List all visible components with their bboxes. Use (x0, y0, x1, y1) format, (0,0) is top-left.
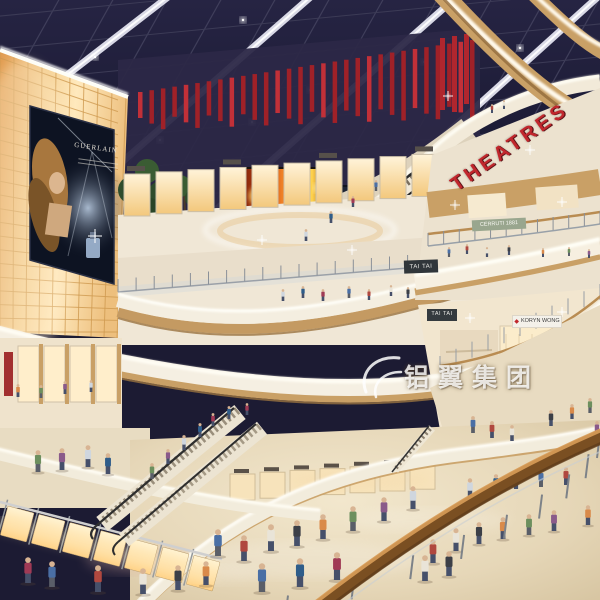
person-figure (351, 196, 354, 207)
person-figure (211, 413, 215, 426)
person-figure (39, 385, 43, 398)
person-figure (570, 404, 574, 419)
person-figure (227, 406, 231, 419)
person-figure (491, 104, 494, 113)
person-figure (568, 247, 571, 256)
person-figure (448, 247, 451, 257)
mall-scene-graphic (0, 0, 600, 600)
person-figure (389, 285, 392, 296)
person-figure (347, 286, 350, 298)
person-figure (150, 463, 154, 479)
mall-atrium-photo: THEATRES GUERLAIN TAI TAI TAI TAI CERRUT… (0, 0, 600, 600)
person-figure (198, 423, 202, 437)
person-figure (374, 180, 377, 191)
person-figure (20, 557, 36, 586)
perfume-billboard (22, 106, 130, 284)
person-figure (44, 561, 60, 590)
person-figure (466, 244, 469, 254)
person-figure (89, 380, 92, 392)
person-figure (588, 249, 591, 258)
person-figure (245, 403, 248, 415)
person-figure (490, 421, 495, 438)
person-figure (503, 100, 506, 109)
person-figure (486, 247, 489, 257)
person-figure (301, 286, 304, 298)
person-figure (508, 245, 511, 255)
person-figure (471, 416, 476, 433)
person-figure (542, 248, 545, 257)
person-figure (406, 287, 409, 298)
person-figure (166, 449, 170, 464)
person-figure (281, 289, 284, 301)
person-figure (588, 398, 592, 413)
person-figure (182, 435, 186, 450)
person-figure (63, 381, 67, 394)
person-figure (549, 410, 553, 426)
person-figure (367, 289, 370, 300)
person-figure (16, 384, 20, 397)
person-figure (304, 229, 307, 241)
person-figure (329, 211, 332, 223)
person-figure (510, 425, 514, 441)
person-figure (321, 289, 324, 301)
